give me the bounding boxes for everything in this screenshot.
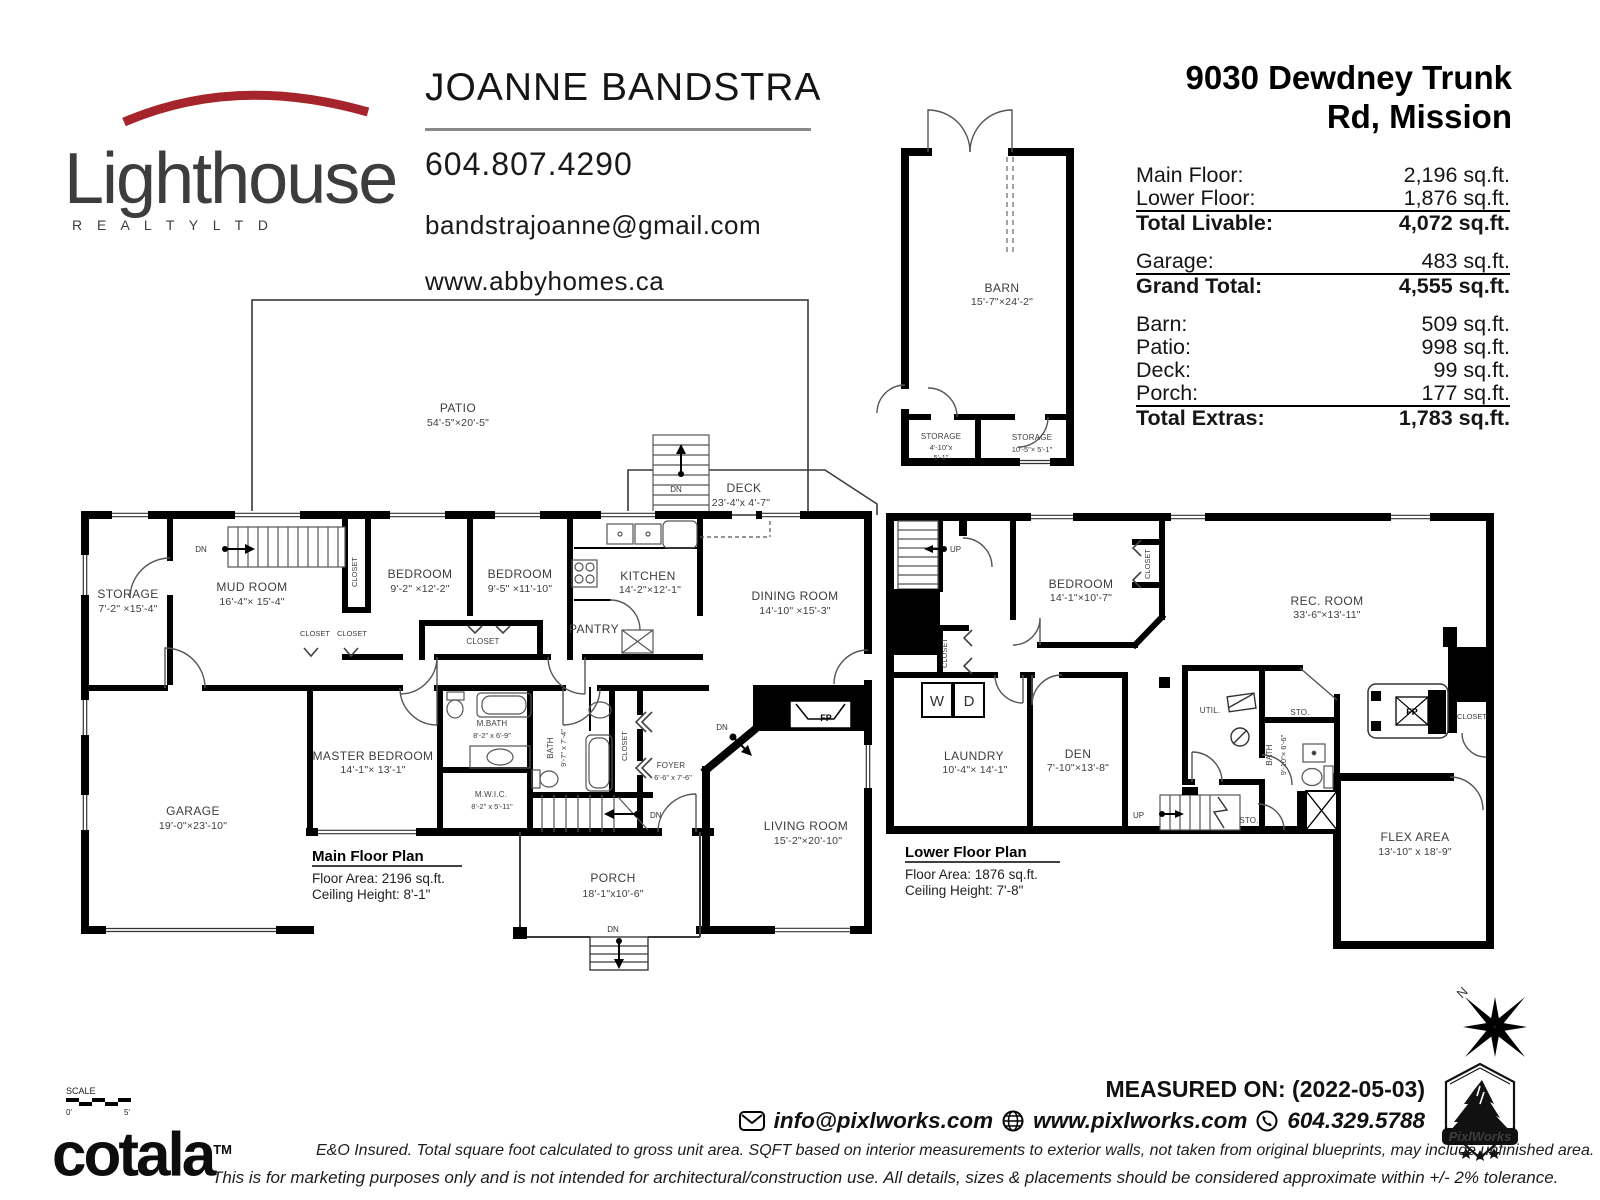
main-floor-area: Floor Area: 2196 sq.ft. (312, 871, 445, 886)
row-label: Main Floor: (1136, 164, 1244, 186)
lf-bedroom-closet: CLOSET (1143, 549, 1152, 579)
lf-bedroom-label: BEDROOM (1049, 577, 1114, 591)
area-group-livable: Main Floor:2,196 sq.ft. Lower Floor:1,87… (1136, 164, 1510, 235)
row-label: Total Livable: (1136, 212, 1273, 234)
barn-dims: 15'-7"×24'-2" (971, 296, 1033, 308)
row-value: 1,876 sq.ft. (1404, 187, 1510, 209)
mudroom-dn-arrow: DN (195, 544, 255, 554)
sto2-label: STO. (1239, 816, 1258, 825)
lf-bath-label: BATH (1265, 744, 1274, 766)
shower (1297, 791, 1337, 830)
disclaimer-line2: This is for marketing purposes only and … (212, 1168, 1558, 1188)
deck-dn-label: DN (670, 485, 682, 494)
table-row: Barn:509 sq.ft. (1136, 313, 1510, 336)
main-floor-ceiling: Ceiling Height: 8'-1" (312, 887, 431, 902)
master-dims: 14'-1"× 13'-1" (340, 764, 405, 776)
stairs-up-label: UP (950, 545, 961, 554)
compass-star (1463, 997, 1527, 1057)
table-total-row: Total Livable:4,072 sq.ft. (1136, 212, 1510, 235)
lower-fireplace: FP (1368, 627, 1487, 738)
table-row: Garage:483 sq.ft. (1136, 250, 1510, 275)
barn-storage1-dims2: 5'-1" (934, 453, 949, 462)
porch-outline (520, 832, 700, 970)
row-value: 509 sq.ft. (1422, 313, 1510, 335)
globe-icon (1002, 1110, 1024, 1132)
pantry-label: PANTRY (569, 622, 619, 636)
scale-widget: SCALE 0' 5' (66, 1086, 136, 1117)
barn-storage1-label: STORAGE (921, 432, 961, 441)
scale-label: SCALE (66, 1086, 136, 1096)
laundry-label: LAUNDRY (944, 749, 1004, 763)
floorplan-sheet: Lighthouse R E A L T Y L T D JOANNE BAND… (0, 0, 1600, 1200)
barn-label: BARN (985, 281, 1020, 295)
email-icon (739, 1111, 765, 1131)
row-label: Total Extras: (1136, 407, 1265, 429)
foyer-dn-arrow (604, 809, 640, 819)
contact-phone: 604.329.5788 (1287, 1108, 1425, 1134)
phone-icon (1256, 1110, 1278, 1132)
row-value: 4,072 sq.ft. (1399, 212, 1510, 234)
mbath-dims: 8'-2" x 6'-9" (473, 731, 511, 740)
lower-bath-fixtures (1302, 744, 1333, 788)
row-label: Garage: (1136, 250, 1214, 272)
patio-label: PATIO (440, 401, 476, 415)
area-summary-table: Main Floor:2,196 sq.ft. Lower Floor:1,87… (1136, 164, 1510, 430)
closet-label: CLOSET (300, 629, 330, 638)
table-row: Patio:998 sq.ft. (1136, 336, 1510, 359)
lower-fp-label: FP (1406, 707, 1418, 717)
bedroom2-dims: 9'-5" ×11'-10" (488, 583, 553, 595)
garage-label: GARAGE (166, 804, 220, 818)
foyer-dims: 6'-6" x 7'-6" (654, 773, 692, 782)
interior-walls (85, 515, 706, 832)
bedroom1-label: BEDROOM (388, 567, 453, 581)
row-value: 1,783 sq.ft. (1399, 407, 1510, 429)
rec-room-label: REC. ROOM (1291, 594, 1364, 608)
table-row: Porch:177 sq.ft. (1136, 382, 1510, 407)
logo-wordmark: Lighthouse (64, 139, 396, 219)
table-row: Lower Floor:1,876 sq.ft. (1136, 187, 1510, 212)
porch-dims: 18'-1"x10'-6" (582, 888, 643, 900)
compass-north-label: N (1454, 984, 1471, 1001)
main-floor-title: Main Floor Plan (312, 848, 424, 865)
deck-dims: 23'-4"x 4'-7" (712, 497, 770, 509)
lighthouse-logo: Lighthouse R E A L T Y L T D (58, 78, 403, 278)
garage-door (106, 926, 276, 934)
bedroom-closet-label: CLOSET (466, 637, 499, 646)
barn-storage2-label: STORAGE (1012, 433, 1052, 442)
barn-window (1020, 458, 1050, 466)
dining-dims: 14'-10" ×15'-3" (759, 605, 830, 617)
dryer-label: D (964, 693, 975, 710)
row-value: 998 sq.ft. (1422, 336, 1510, 358)
agent-phone: 604.807.4290 (425, 146, 633, 183)
lower-floor-area: Floor Area: 1876 sq.ft. (905, 867, 1038, 882)
deck-label: DECK (727, 481, 762, 495)
row-label: Patio: (1136, 336, 1191, 358)
fp-closet-label: CLOSET (1457, 712, 1487, 721)
logo-subtitle: R E A L T Y L T D (72, 217, 273, 233)
barn-track (1007, 157, 1013, 253)
foyer-label: FOYER (657, 761, 686, 770)
row-label: Deck: (1136, 359, 1191, 381)
den-label: DEN (1065, 747, 1092, 761)
bath-dims: 9'-7" x 7'-4" (559, 729, 568, 767)
interior-walls (890, 521, 1337, 830)
stairs-up-label2: UP (1133, 811, 1144, 820)
patio-outline (252, 300, 877, 515)
kitchen-dims: 14'-2"×12'-1" (619, 584, 681, 596)
fireplace: FP (753, 685, 868, 731)
lower-floor-ceiling: Ceiling Height: 7'-8" (905, 883, 1024, 898)
hall-closet-label: CLOSET (350, 557, 359, 587)
mwic-dims: 8'-2" x 5'-11" (471, 802, 513, 811)
contact-website: www.pixlworks.com (1033, 1108, 1247, 1134)
row-label: Barn: (1136, 313, 1187, 335)
pixlworks-contact: info@pixlworks.com www.pixlworks.com 604… (739, 1108, 1425, 1134)
property-address: 9030 Dewdney Trunk Rd, Mission (1186, 58, 1512, 136)
table-total-row: Grand Total:4,555 sq.ft. (1136, 275, 1510, 298)
row-label: Porch: (1136, 382, 1198, 404)
den-dims: 7'-10"×13'-8" (1047, 762, 1109, 774)
foyer-dn-label: DN (650, 811, 662, 820)
lower-stairs: UP (1133, 787, 1240, 830)
garage-dims: 19'-0"×23'-10" (159, 820, 227, 832)
cotala-logo: cotalaTM (52, 1122, 232, 1184)
row-value: 177 sq.ft. (1422, 382, 1510, 404)
cotala-tm: TM (213, 1142, 232, 1157)
washer-label: W (930, 693, 945, 710)
lower-floor-title: Lower Floor Plan (905, 844, 1027, 861)
scale-bar-icon (66, 1098, 136, 1108)
porch-post (513, 927, 527, 939)
flex-label: FLEX AREA (1381, 830, 1450, 844)
main-floor-plan: DN (50, 288, 890, 980)
address-line2: Rd, Mission (1186, 97, 1512, 136)
living-dn-label: DN (716, 723, 728, 732)
living-label: LIVING ROOM (764, 819, 848, 833)
util-label: UTIL. (1200, 706, 1221, 715)
util-fixtures (1227, 693, 1256, 746)
contact-email: info@pixlworks.com (774, 1108, 993, 1134)
master-label: MASTER BEDROOM (313, 749, 434, 763)
closet-label: CLOSET (337, 629, 367, 638)
row-label: Grand Total: (1136, 275, 1262, 297)
lower-floor-plan: UP W D (875, 500, 1510, 960)
bedroom1-dims: 9'-2" ×12'-2" (390, 583, 449, 595)
lf-hall-closet: CLOSET (940, 638, 949, 668)
porch-dn-label: DN (607, 925, 619, 934)
fireplace-label: FP (820, 713, 832, 723)
measured-on: MEASURED ON: (2022-05-03) (1105, 1076, 1425, 1103)
storage-dims: 7'-2" ×15'-4" (98, 603, 157, 615)
patio-dims: 54'-5"×20'-5" (427, 417, 489, 429)
mudroom-label: MUD ROOM (216, 580, 287, 594)
row-value: 99 sq.ft. (1434, 359, 1511, 381)
scale-five: 5' (124, 1108, 130, 1117)
row-value: 4,555 sq.ft. (1399, 275, 1510, 297)
area-group-extras: Barn:509 sq.ft. Patio:998 sq.ft. Deck:99… (1136, 313, 1510, 430)
barn-storage2-dims: 10'-5"× 5'-1" (1012, 445, 1053, 454)
living-dims: 15'-2"×20'-10" (774, 835, 842, 847)
disclaimer-line1: E&O Insured. Total square foot calculate… (316, 1142, 1594, 1160)
rec-post (1159, 677, 1170, 688)
bath-closet-label: CLOSET (620, 731, 629, 761)
logo-arc-icon (124, 95, 368, 122)
dining-label: DINING ROOM (751, 589, 838, 603)
address-line1: 9030 Dewdney Trunk (1186, 58, 1512, 97)
lf-bath-dims: 9'-10"× 6'-6" (1279, 734, 1288, 775)
barn-plan: BARN 15'-7"×24'-2" STORAGE 4'-10"x 5'-1"… (865, 95, 1105, 485)
sto-label: STO. (1290, 708, 1309, 717)
storage-label: STORAGE (97, 587, 158, 601)
scale-zero: 0' (66, 1108, 72, 1117)
porch-label: PORCH (590, 871, 635, 885)
laundry-dims: 10'-4"× 14'-1" (942, 764, 1007, 776)
bath-label: BATH (546, 737, 555, 759)
flex-dims: 13'-10" x 18'-9" (1378, 846, 1452, 858)
row-value: 483 sq.ft. (1422, 250, 1510, 272)
agent-email: bandstrajoanne@gmail.com (425, 210, 761, 241)
area-group-grand: Garage:483 sq.ft. Grand Total:4,555 sq.f… (1136, 250, 1510, 298)
table-total-row: Total Extras:1,783 sq.ft. (1136, 407, 1510, 430)
lower-floor-title-block: Lower Floor Plan Floor Area: 1876 sq.ft.… (905, 844, 1060, 898)
mudroom-dn-label: DN (195, 545, 207, 554)
mudroom-dims: 16'-4"× 15'-4" (219, 596, 284, 608)
main-floor-title-block: Main Floor Plan Floor Area: 2196 sq.ft. … (312, 848, 462, 902)
row-value: 2,196 sq.ft. (1404, 164, 1510, 186)
bedroom2-label: BEDROOM (488, 567, 553, 581)
washer-dryer: W D (922, 683, 984, 717)
row-label: Lower Floor: (1136, 187, 1256, 209)
table-row: Main Floor:2,196 sq.ft. (1136, 164, 1510, 187)
barn-storage1-dims: 4'-10"x (930, 443, 953, 452)
lf-bedroom-dims: 14'-1"×10'-7" (1050, 592, 1112, 604)
cotala-wordmark: cotala (52, 1121, 213, 1190)
table-row: Deck:99 sq.ft. (1136, 359, 1510, 382)
agent-divider (425, 128, 811, 131)
kitchen-label: KITCHEN (620, 569, 675, 583)
agent-name: JOANNE BANDSTRA (425, 66, 821, 110)
mwic-label: M.W.I.C. (475, 790, 507, 799)
mbath-label: M.BATH (477, 719, 508, 728)
rec-room-dims: 33'-6"×13'-11" (1293, 609, 1361, 621)
